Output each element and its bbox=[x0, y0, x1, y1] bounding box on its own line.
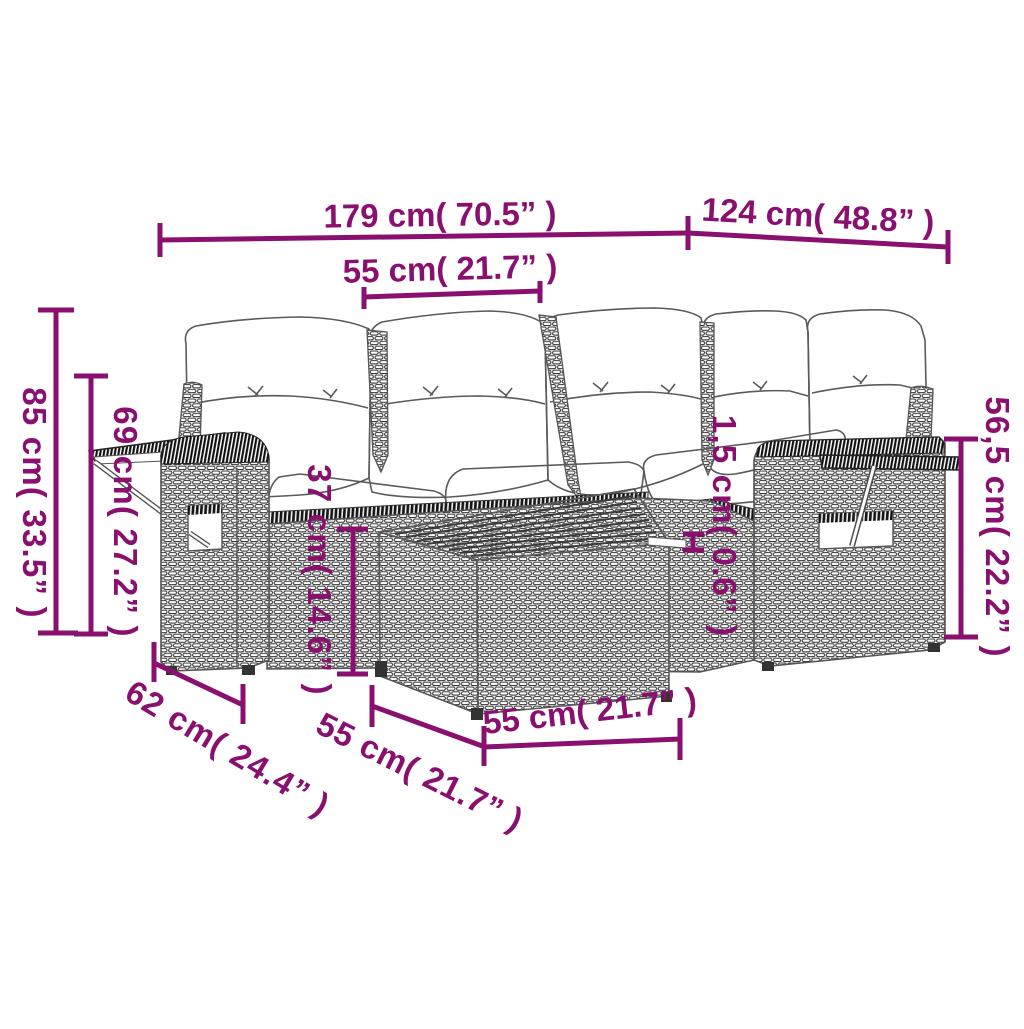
svg-text:37 cm( 14.6” ): 37 cm( 14.6” ) bbox=[301, 464, 338, 695]
svg-text:69 cm( 27.2” ): 69 cm( 27.2” ) bbox=[107, 406, 144, 637]
svg-text:56,5 cm( 22.2” ): 56,5 cm( 22.2” ) bbox=[979, 396, 1016, 657]
svg-text:55 cm( 21.7” ): 55 cm( 21.7” ) bbox=[342, 247, 558, 290]
svg-text:1,5 cm( 0.6” ): 1,5 cm( 0.6” ) bbox=[706, 415, 743, 637]
svg-text:85 cm( 33.5” ): 85 cm( 33.5” ) bbox=[16, 387, 53, 618]
svg-text:179 cm( 70.5” ): 179 cm( 70.5” ) bbox=[323, 194, 556, 234]
